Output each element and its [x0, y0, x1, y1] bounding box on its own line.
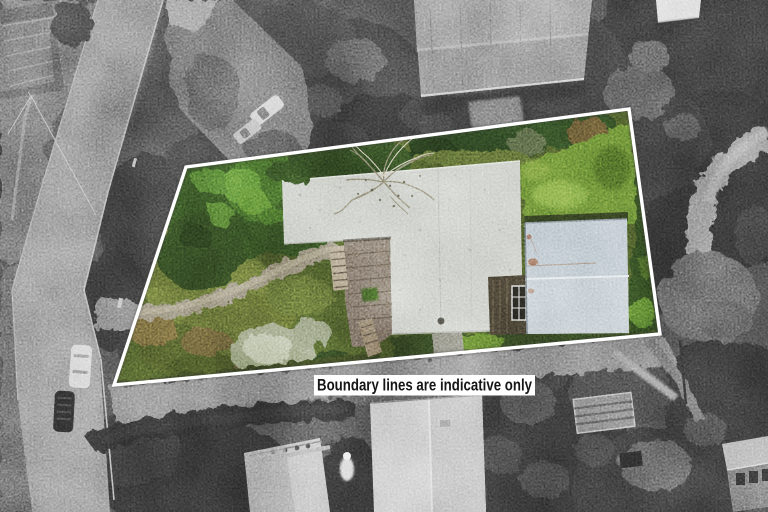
svg-text:Boundary lines are indicative: Boundary lines are indicative only	[317, 376, 532, 395]
